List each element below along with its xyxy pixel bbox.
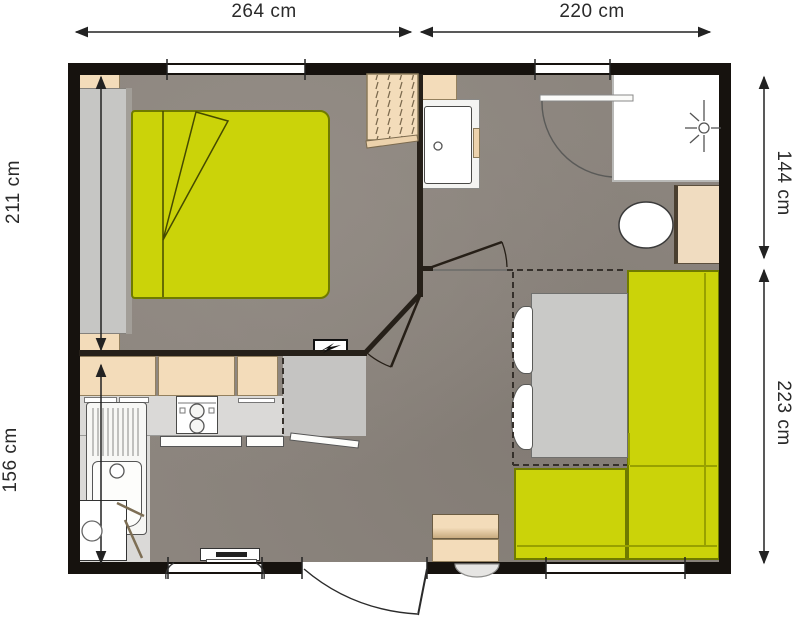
kitchen-cabinet [158, 356, 235, 396]
window-bedroom [167, 63, 305, 75]
bench-bottom [514, 468, 627, 560]
seat-cushion [511, 384, 533, 450]
dim-label-top-left: 264 cm [214, 1, 314, 23]
kitchen-tall-unit [283, 356, 366, 436]
window-bathroom [535, 63, 610, 75]
wall-bedroom-kitchen [79, 350, 367, 356]
heater-grille [216, 552, 247, 557]
under-counter-door [160, 436, 242, 447]
wall-right [719, 63, 731, 574]
wall-bedroom-bathroom [417, 74, 423, 297]
bed-headboard [79, 88, 131, 334]
appliance [74, 500, 127, 561]
bench-right [627, 270, 720, 560]
vanity-shelf [419, 74, 457, 100]
window-kitchen [168, 562, 262, 574]
wall-bathroom-hinge [417, 266, 433, 271]
bed-mattress [131, 110, 330, 299]
dim-label-top-right: 220 cm [542, 1, 642, 23]
cabinet-door-strip [238, 398, 275, 403]
washbasin [424, 106, 472, 184]
dim-label-right-upper: 144 cm [772, 133, 794, 233]
entrance-door-arc [304, 569, 417, 614]
wall-left [68, 63, 80, 574]
kitchen-cabinet [237, 356, 278, 396]
under-counter-door [246, 436, 284, 447]
entrance-door-leaf [418, 569, 427, 615]
entrance-step-upper [432, 514, 499, 539]
entrance-step-lower [432, 539, 499, 562]
toilet-cistern [674, 185, 720, 264]
dim-label-left-upper: 211 cm [3, 142, 25, 242]
dining-table [531, 293, 628, 458]
kitchen-cabinet [79, 356, 156, 396]
dim-label-left-lower: 156 cm [0, 410, 22, 510]
vanity-side [473, 128, 480, 158]
entrance-door-opening [302, 562, 427, 574]
window-living [546, 562, 685, 574]
cooktop [176, 396, 218, 434]
dim-label-right-lower: 223 cm [772, 363, 794, 463]
floorplan-canvas: 264 cm 220 cm 211 cm 156 cm 144 cm 223 c… [0, 0, 799, 623]
seat-cushion [511, 306, 533, 374]
shower-tray [612, 74, 720, 182]
